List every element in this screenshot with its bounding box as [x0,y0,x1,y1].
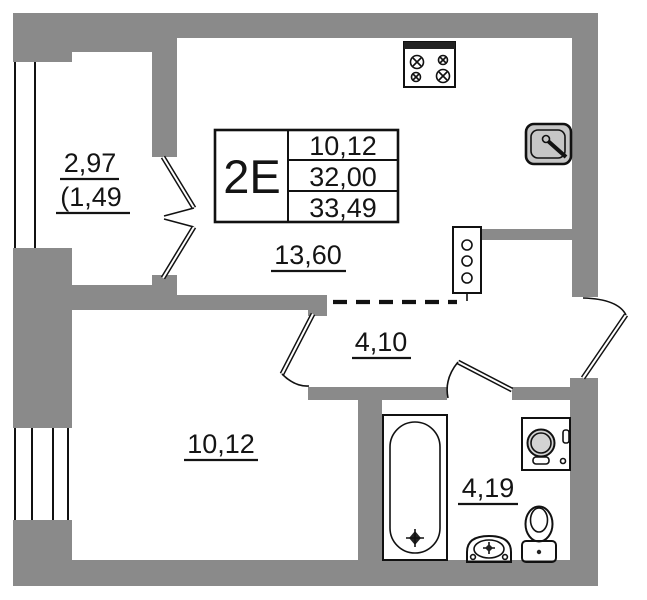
balcony-area-label: 2,97 [64,148,117,178]
balcony-window-icon [15,62,35,248]
entrance-door-icon [583,298,626,378]
unit-area-value-3: 33,49 [309,193,377,223]
wall-balcony-top-left [13,13,72,62]
wall-bottom [13,560,598,586]
unit-area-value-1: 10,12 [309,131,377,161]
balcony-door-icon [163,157,194,278]
wall-room-bath [358,387,382,560]
wall-balcony-top [72,13,152,52]
wall-balcony-room [72,285,177,310]
unit-area-value-2: 32,00 [309,162,377,192]
unit-type-label: 2E [223,150,281,203]
kitchen-sink-icon [526,124,571,164]
hallway-area-label: 4,10 [355,327,408,357]
kitchen-living-area-label: 13,60 [274,240,342,270]
balcony-reduced-area-label: (1,49 [60,182,122,212]
wash-basin-icon [467,536,511,562]
floor-plan-drawing: 2E 10,12 32,00 33,49 2,97 (1,49 13,60 4,… [0,0,647,600]
room-door-icon [282,314,313,386]
stove-icon [404,42,455,87]
unit-info-table: 2E 10,12 32,00 33,49 [215,130,398,223]
ventilation-shaft-icon [453,227,481,301]
bathroom-area-label: 4,19 [462,473,515,503]
wall-balcony-kitchen [152,13,177,157]
wall-kitchen-room [177,295,327,310]
wall-vent-stub [481,229,572,240]
room-window-icon [15,428,68,520]
bathroom-door-icon [447,362,512,398]
toilet-icon [522,507,556,563]
wall-hall-bath-right [512,387,570,400]
wall-right-upper [572,13,598,297]
bathtub-icon [383,415,447,560]
wall-right-lower [570,378,598,586]
wall-left-middle [13,248,72,428]
washing-machine-icon [522,418,570,470]
room-area-label: 10,12 [187,429,255,459]
floor-plan: 2E 10,12 32,00 33,49 2,97 (1,49 13,60 4,… [0,0,647,600]
